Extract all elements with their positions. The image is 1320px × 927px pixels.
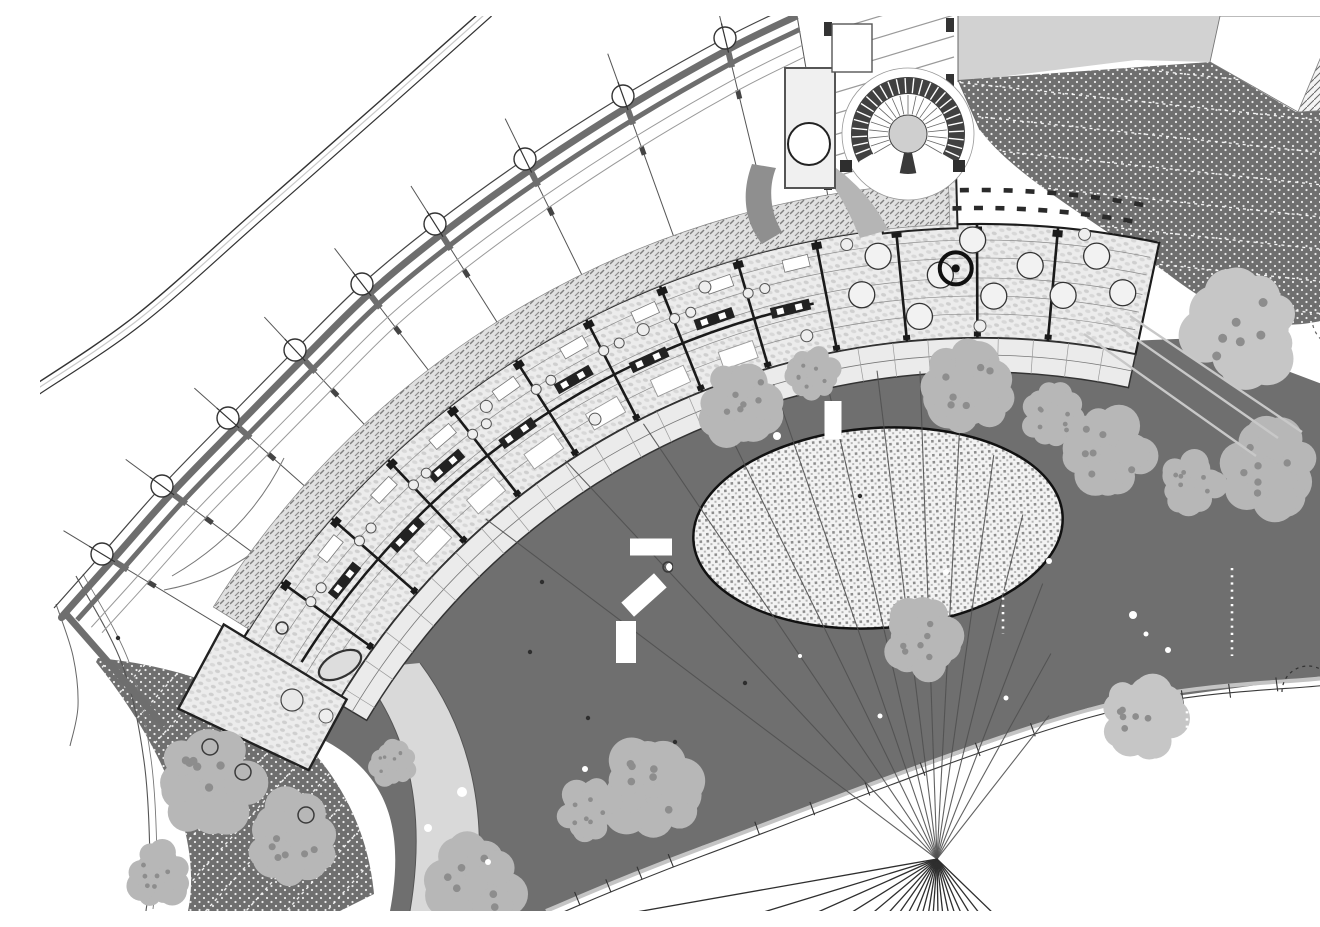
- plaza-light-dot: [1004, 696, 1009, 701]
- plaza-bench: [630, 539, 672, 556]
- plaza-bench: [49, 571, 59, 581]
- terrace-table: [865, 243, 891, 269]
- plaza-light-dot: [1129, 611, 1137, 619]
- terrace-table: [1017, 253, 1043, 279]
- terrace-table: [906, 303, 932, 329]
- plaza-light-dot: [943, 569, 949, 575]
- terrace-table: [981, 283, 1007, 309]
- terrace-table: [960, 227, 986, 253]
- plaza-light-dot: [1046, 558, 1052, 564]
- plaza-light-dot: [582, 766, 588, 772]
- site-plan-canvas: [40, 16, 1320, 911]
- terrace-table: [1050, 282, 1076, 308]
- terrace-table: [1110, 280, 1136, 306]
- plaza-light-dot: [878, 714, 883, 719]
- plaza-light-dot: [485, 859, 491, 865]
- plaza-light-dot: [773, 432, 781, 440]
- plaza-bench: [825, 401, 842, 439]
- plaza-light-dot: [457, 787, 467, 797]
- plaza-bench: [616, 621, 636, 663]
- plaza-light-dot: [798, 654, 802, 658]
- elevator-cab: [788, 123, 830, 165]
- terrace-table: [849, 282, 875, 308]
- plaza-light-dot: [424, 824, 432, 832]
- plaza-light-dot: [1165, 647, 1171, 653]
- site-plan-figure: [40, 16, 1320, 911]
- terrace-table: [1084, 243, 1110, 269]
- plaza-light-dot: [1144, 632, 1149, 637]
